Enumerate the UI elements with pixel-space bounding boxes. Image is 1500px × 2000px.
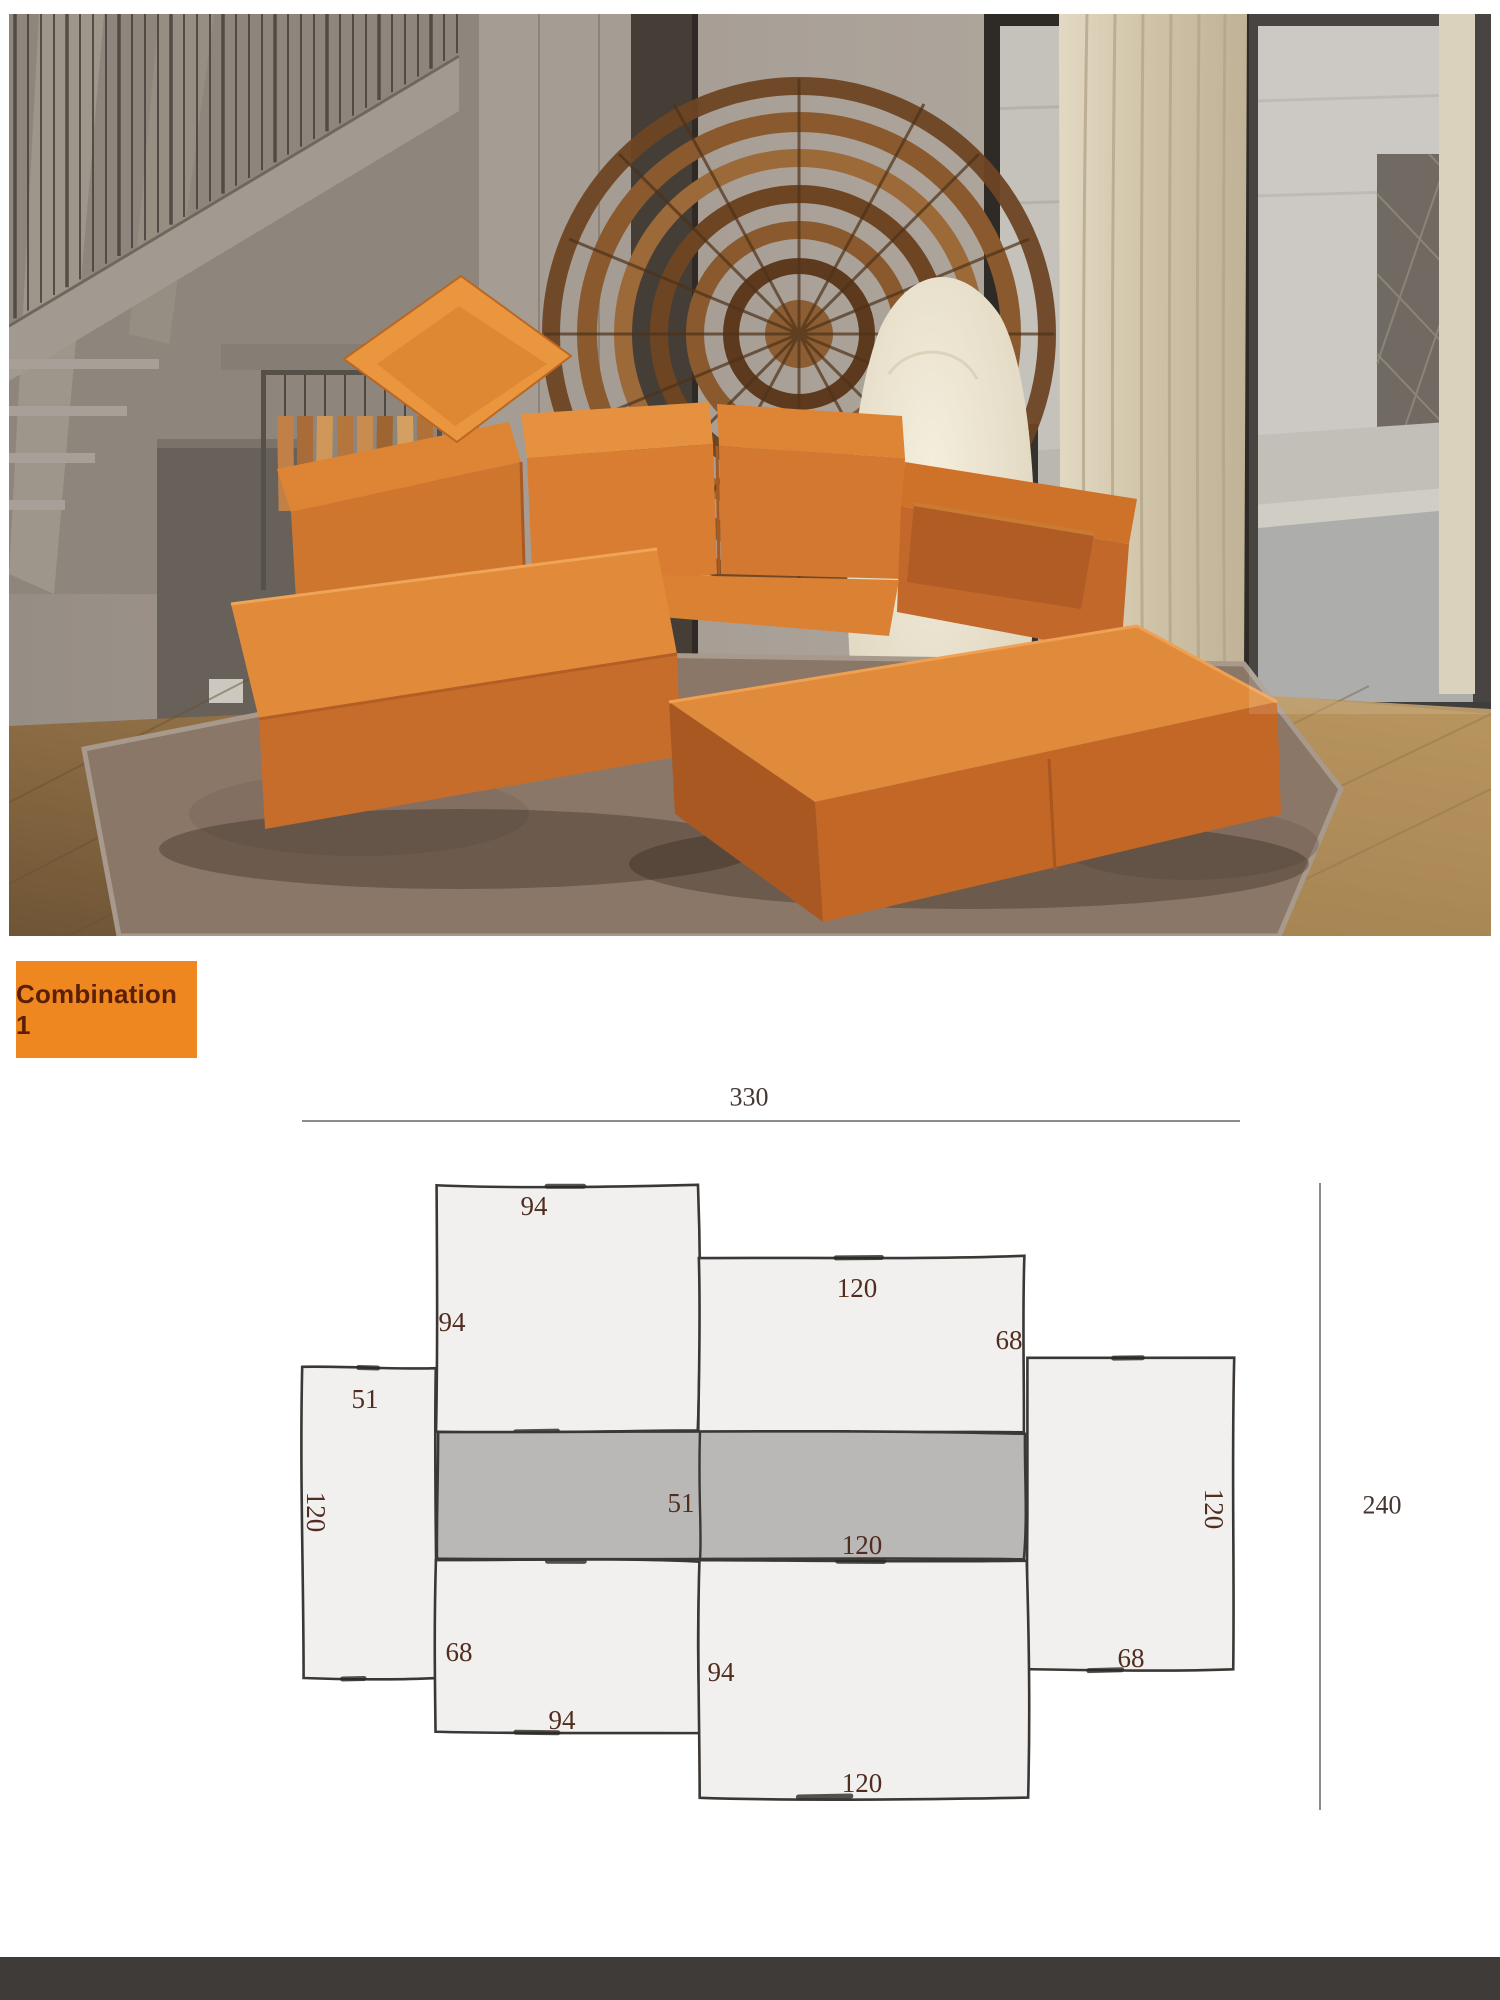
module-left-arm-accent2 bbox=[343, 1678, 365, 1679]
module-back-band bbox=[437, 1431, 1026, 1559]
daylight-glow bbox=[1249, 14, 1491, 714]
dim-label-120: 120 bbox=[837, 1273, 878, 1303]
overall-width-label: 330 bbox=[730, 1083, 769, 1112]
dim-label-68: 68 bbox=[996, 1325, 1023, 1355]
dim-label-94: 94 bbox=[708, 1657, 736, 1687]
dim-label-120: 120 bbox=[842, 1768, 883, 1798]
dim-label-94: 94 bbox=[521, 1191, 549, 1221]
showroom-photo bbox=[9, 14, 1491, 936]
dim-label-120: 120 bbox=[842, 1530, 883, 1560]
dim-label-68: 68 bbox=[446, 1637, 473, 1667]
dim-label-120: 120 bbox=[301, 1492, 331, 1533]
dim-label-68: 68 bbox=[1118, 1643, 1145, 1673]
combination-1-text: Combination 1 bbox=[16, 979, 197, 1041]
band-seam-line bbox=[699, 1432, 700, 1560]
dimension-diagram: 511209494120681206868949412051120330240 bbox=[0, 1060, 1500, 1900]
dimension-diagram-svg: 511209494120681206868949412051120330240 bbox=[0, 1060, 1500, 1900]
dim-label-51: 51 bbox=[352, 1384, 379, 1414]
dim-label-51: 51 bbox=[668, 1488, 695, 1518]
combination-1-label: Combination 1 bbox=[16, 961, 197, 1058]
showroom-scene bbox=[9, 14, 1491, 936]
module-seat-right bbox=[698, 1560, 1029, 1800]
dim-label-94: 94 bbox=[549, 1705, 577, 1735]
footer-bar bbox=[0, 1957, 1500, 2000]
dim-label-94: 94 bbox=[439, 1307, 467, 1337]
dim-label-120: 120 bbox=[1199, 1489, 1229, 1530]
overall-height-label: 240 bbox=[1363, 1491, 1402, 1520]
module-back-left bbox=[436, 1185, 700, 1433]
module-left-arm-accent bbox=[359, 1367, 378, 1368]
